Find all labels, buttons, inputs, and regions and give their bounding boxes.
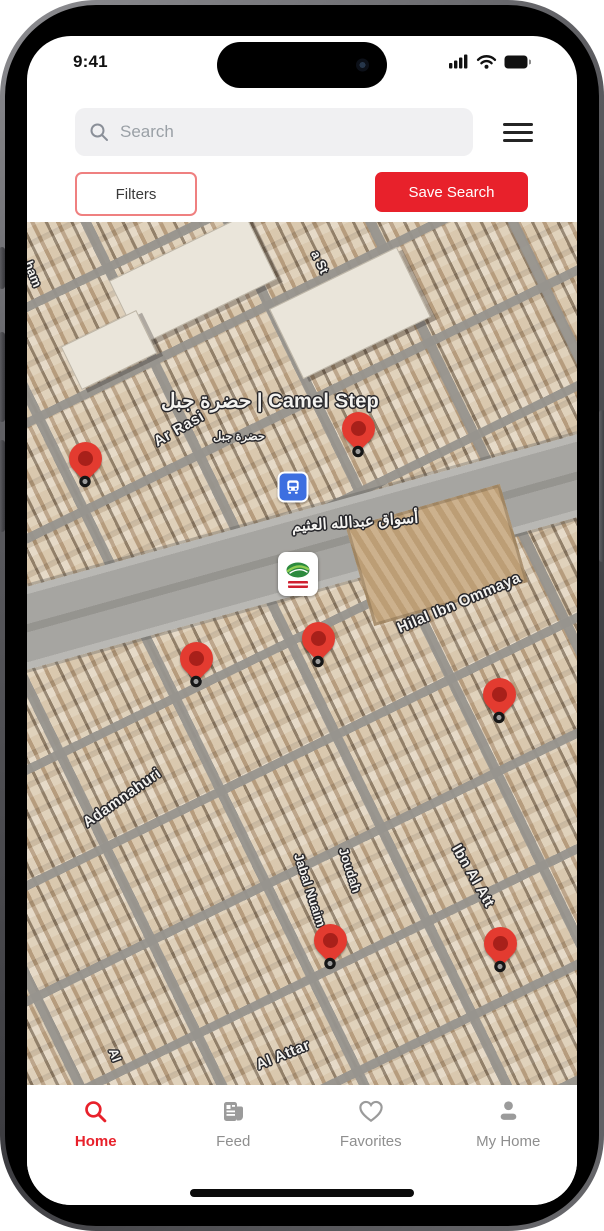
bus-station-marker[interactable] [278,472,309,503]
dynamic-island [217,42,387,88]
pin-shadow [350,445,366,458]
status-bar: 9:41 [27,36,577,92]
map-pin[interactable] [481,925,519,973]
pin-shadow [77,475,93,488]
tab-feed[interactable]: Feed [165,1085,303,1205]
othaim-arabic-text [288,581,308,588]
home-indicator[interactable] [190,1189,414,1197]
search-placeholder: Search [120,122,174,142]
search-icon [89,122,109,142]
menu-icon[interactable] [503,119,533,145]
tab-my-home[interactable]: My Home [440,1085,578,1205]
map-canvas[interactable]: hama StAr Rasiحضرة جبل | Camel Stepحضرة … [27,222,577,1085]
pin-shadow [322,957,338,970]
news-icon [220,1099,246,1124]
pin-shadow [310,655,326,668]
map-street-label: حضرة جبل [213,429,265,443]
bus-icon [285,479,302,496]
othaim-logo-icon [285,561,311,579]
person-icon [496,1099,521,1124]
pin-shadow [188,675,204,688]
power-button [599,410,604,562]
front-camera-icon [356,59,369,72]
wifi-icon [476,54,497,69]
status-icons [449,54,531,69]
tab-home-label: Home [75,1133,117,1150]
tab-feed-label: Feed [216,1133,250,1150]
othaim-market-marker[interactable] [278,552,318,596]
map-pin[interactable] [339,410,377,458]
status-time: 9:41 [73,52,108,72]
filters-button[interactable]: Filters [75,172,197,216]
pin-shadow [491,711,507,724]
search-input[interactable]: Search [75,108,473,156]
map-pin[interactable] [66,440,104,488]
save-search-button-label: Save Search [409,184,495,201]
map-pin[interactable] [480,676,518,724]
cellular-signal-icon [449,54,469,69]
map-pin[interactable] [177,640,215,688]
search-icon [83,1099,108,1124]
filters-button-label: Filters [116,186,157,203]
tab-home[interactable]: Home [27,1085,165,1205]
tab-favorites[interactable]: Favorites [302,1085,440,1205]
tab-favorites-label: Favorites [340,1133,402,1150]
bottom-tab-bar: Home Feed Favorites [27,1085,577,1205]
battery-icon [504,55,531,69]
heart-icon [358,1099,384,1124]
phone-frame: 9:41 [0,0,604,1231]
map-pin[interactable] [299,620,337,668]
map-pin[interactable] [311,922,349,970]
tab-my-home-label: My Home [476,1133,540,1150]
app-screen: 9:41 [27,36,577,1205]
save-search-button[interactable]: Save Search [375,172,528,212]
pin-shadow [492,960,508,973]
